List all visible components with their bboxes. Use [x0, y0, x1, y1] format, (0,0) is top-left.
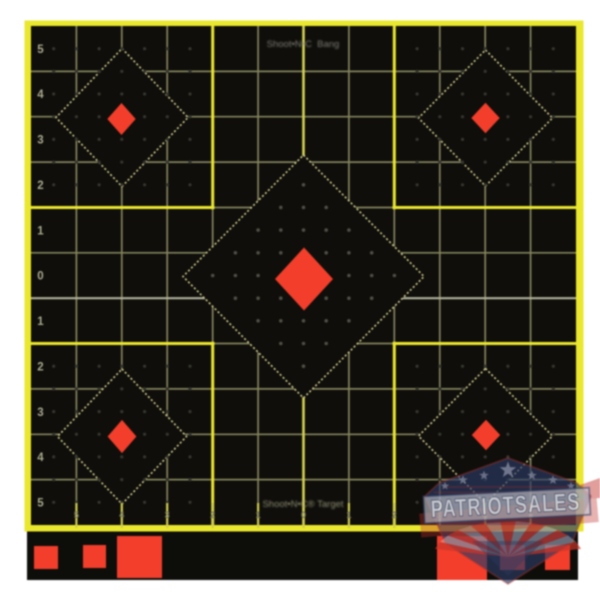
svg-text:2: 2 — [210, 510, 215, 521]
svg-text:4: 4 — [37, 452, 44, 464]
svg-text:5: 5 — [74, 510, 80, 521]
svg-text:0: 0 — [301, 510, 306, 521]
svg-text:2: 2 — [392, 510, 397, 521]
svg-text:4: 4 — [119, 510, 125, 521]
svg-text:1: 1 — [346, 510, 352, 521]
svg-text:1: 1 — [255, 510, 261, 521]
svg-text:Shoot•N•C® Target: Shoot•N•C® Target — [262, 499, 343, 510]
svg-text:5: 5 — [37, 498, 44, 510]
svg-text:4: 4 — [37, 89, 44, 101]
svg-text:2: 2 — [37, 361, 43, 373]
svg-text:1: 1 — [37, 316, 44, 328]
svg-text:3: 3 — [165, 510, 170, 521]
svg-text:2: 2 — [37, 180, 43, 192]
svg-text:3: 3 — [37, 407, 43, 419]
svg-text:1: 1 — [37, 225, 44, 237]
svg-text:5: 5 — [37, 44, 44, 56]
svg-text:Shoot•N•C Bang: Shoot•N•C Bang — [267, 39, 340, 50]
svg-text:0: 0 — [37, 271, 43, 283]
svg-text:3: 3 — [37, 135, 43, 147]
